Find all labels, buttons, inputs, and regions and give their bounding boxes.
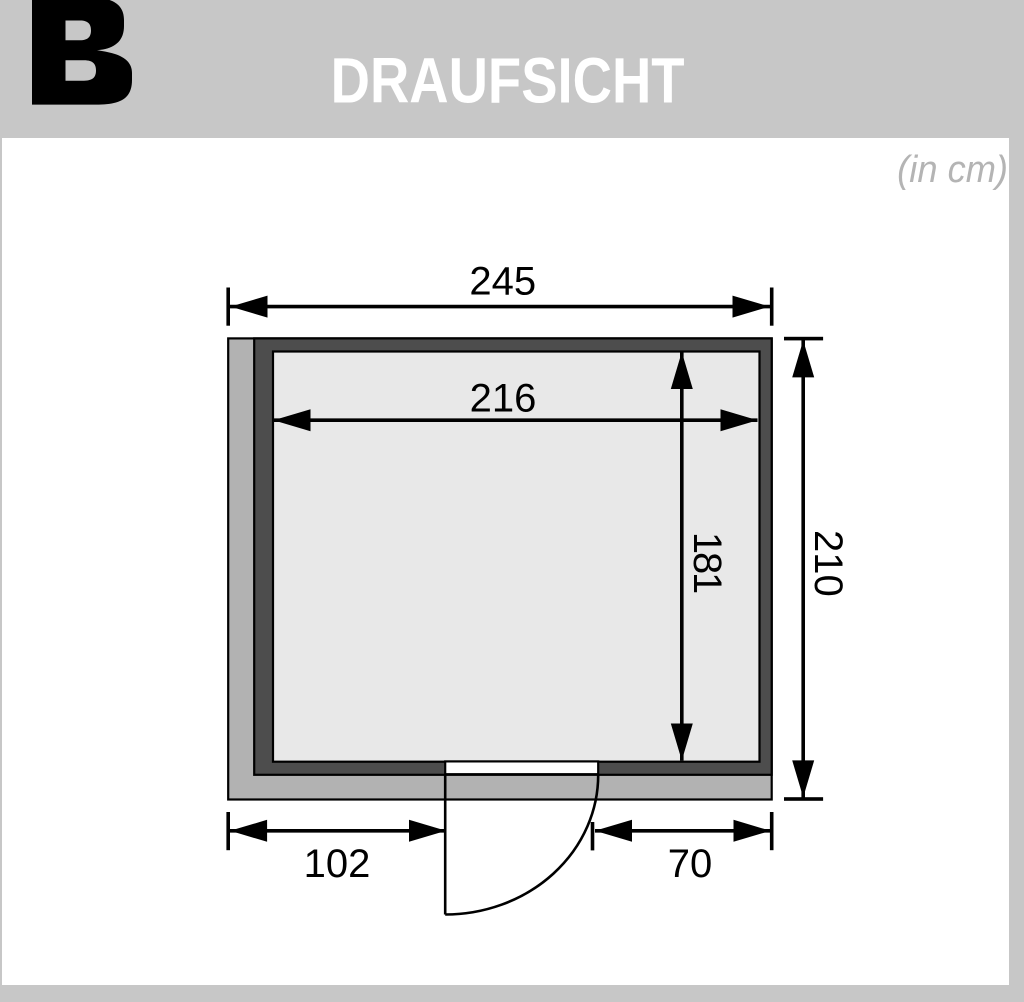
svg-text:102: 102: [304, 842, 371, 886]
svg-text:70: 70: [668, 842, 713, 886]
svg-text:DRAUFSICHT: DRAUFSICHT: [331, 44, 685, 116]
svg-text:210: 210: [806, 530, 850, 597]
svg-text:181: 181: [685, 532, 729, 593]
svg-text:(in cm): (in cm): [897, 147, 1008, 190]
svg-text:216: 216: [470, 376, 537, 420]
svg-text:245: 245: [469, 260, 536, 304]
